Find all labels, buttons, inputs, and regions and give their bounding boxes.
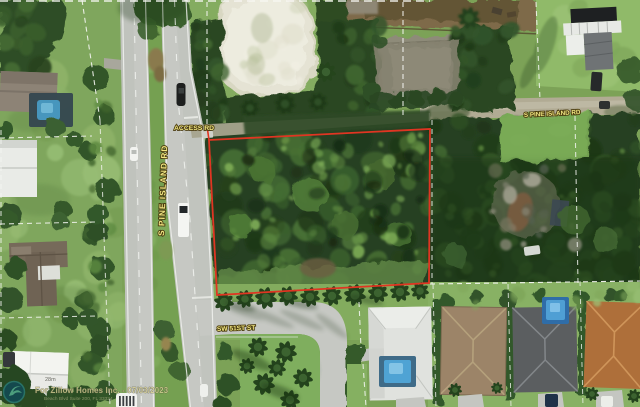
svg-text:28m: 28m xyxy=(45,377,56,383)
svg-text:Beach Blvd Suite 200, FL 33324: Beach Blvd Suite 200, FL 33324 xyxy=(44,396,113,402)
svg-text:ACCESS RD: ACCESS RD xyxy=(174,125,214,132)
svg-text:For Zillow Homes Inc. - 07/03/: For Zillow Homes Inc. - 07/03/2023 xyxy=(35,386,169,395)
svg-text:SW 51ST ST: SW 51ST ST xyxy=(217,325,256,333)
